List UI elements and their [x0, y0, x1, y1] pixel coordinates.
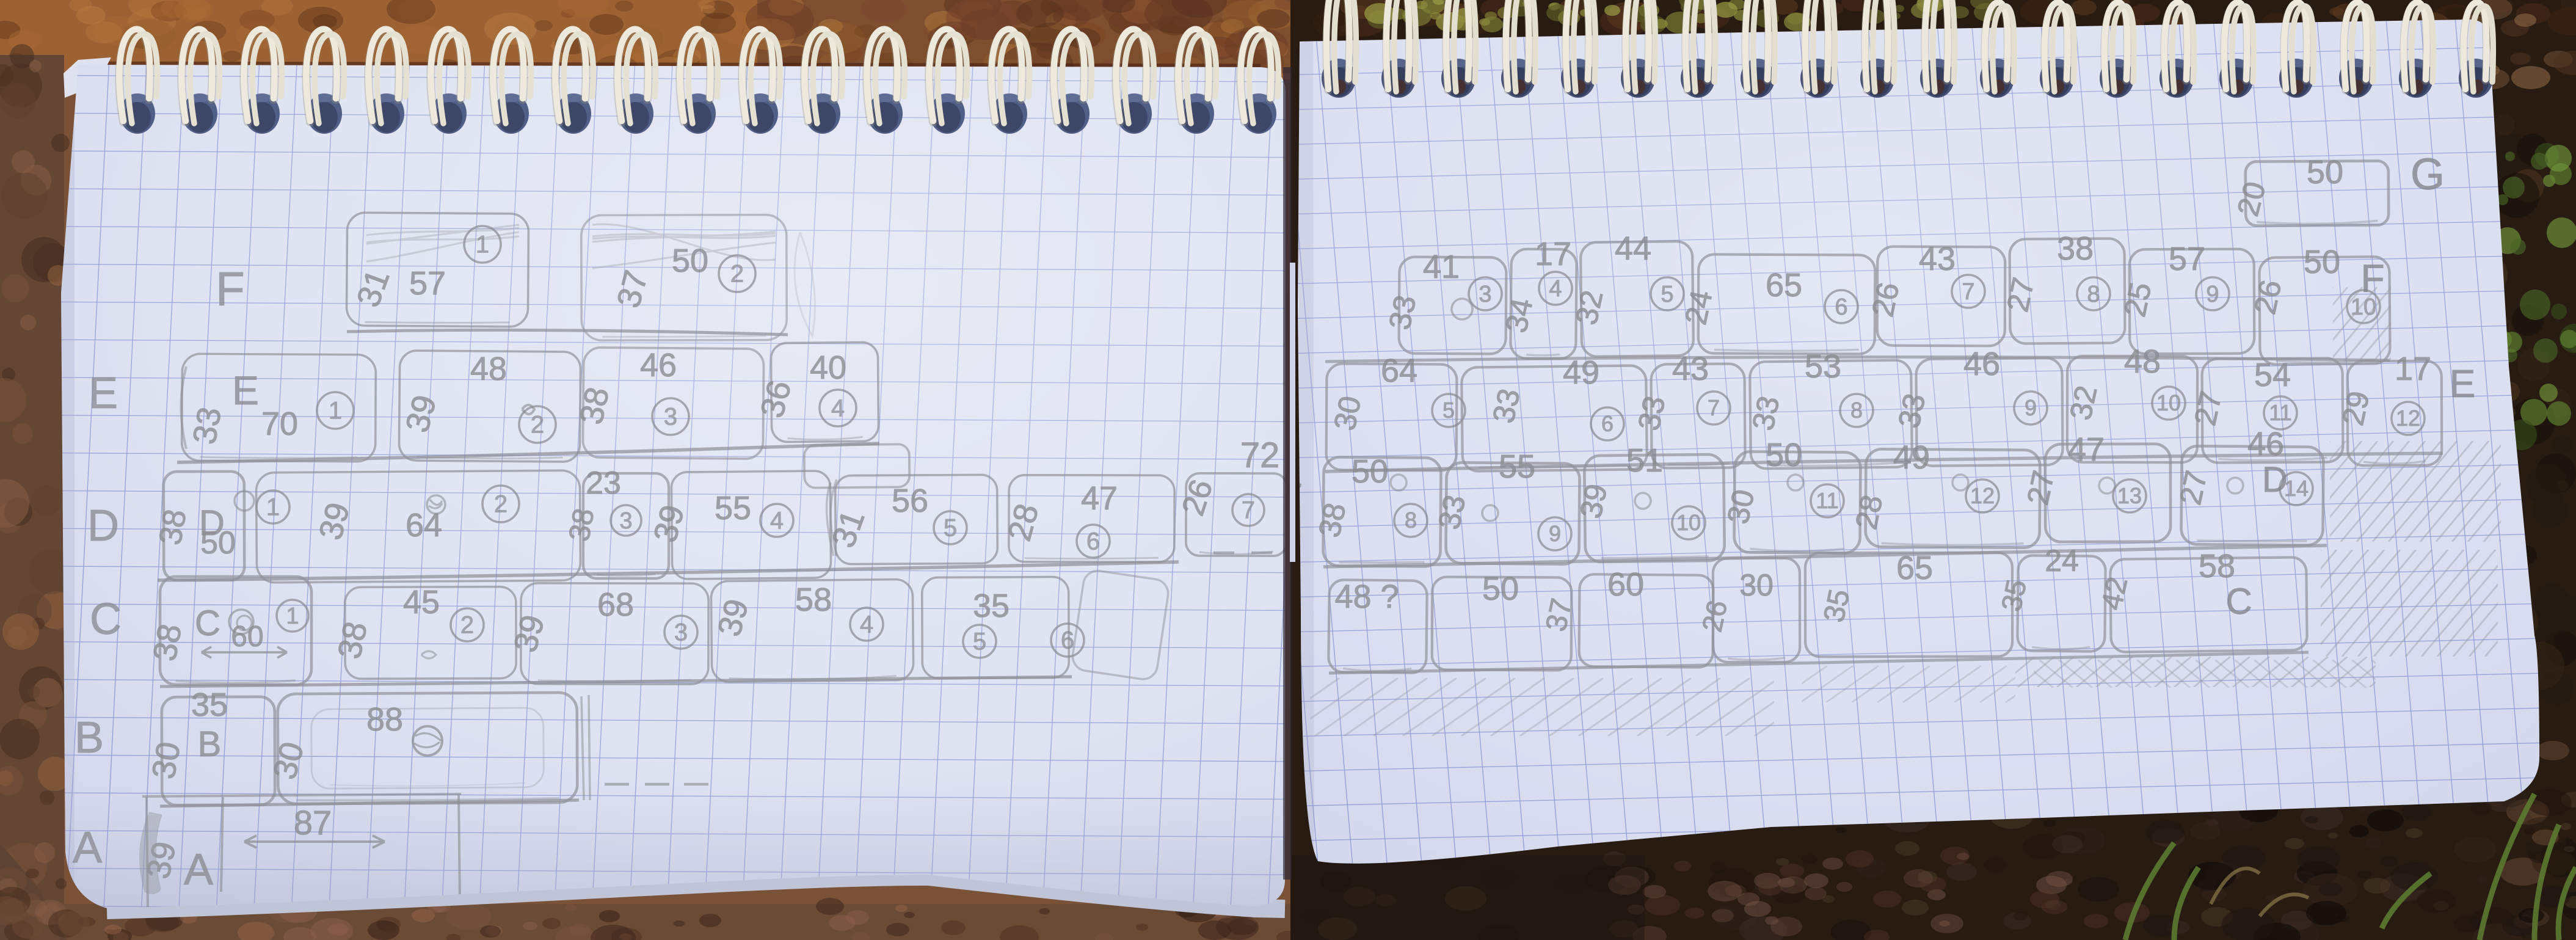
svg-text:12: 12	[1970, 483, 1995, 508]
svg-text:7: 7	[1242, 497, 1255, 524]
svg-text:33: 33	[1432, 492, 1472, 532]
svg-text:28: 28	[1849, 492, 1889, 532]
svg-text:50: 50	[2307, 154, 2343, 191]
svg-text:50: 50	[1352, 453, 1388, 490]
svg-text:27: 27	[2020, 467, 2061, 508]
svg-text:30: 30	[1327, 393, 1367, 433]
svg-text:3: 3	[1479, 282, 1491, 307]
svg-text:35: 35	[1995, 577, 2033, 614]
svg-text:38: 38	[2057, 230, 2094, 267]
svg-text:6: 6	[1601, 411, 1614, 436]
svg-text:6: 6	[1835, 294, 1847, 320]
svg-text:60: 60	[1607, 566, 1644, 603]
svg-text:49: 49	[1893, 439, 1930, 476]
svg-text:30: 30	[1720, 486, 1761, 526]
svg-text:G: G	[2410, 150, 2445, 199]
svg-text:51: 51	[1626, 442, 1663, 479]
svg-text:2: 2	[730, 261, 744, 288]
svg-text:33: 33	[1631, 393, 1672, 433]
svg-text:68: 68	[597, 586, 634, 623]
svg-text:65: 65	[1896, 550, 1933, 586]
svg-text:53: 53	[1805, 348, 1841, 385]
svg-text:6: 6	[1086, 528, 1100, 555]
svg-text:50: 50	[2304, 244, 2340, 280]
svg-text:10: 10	[2156, 390, 2181, 415]
svg-text:64: 64	[1381, 352, 1417, 389]
svg-text:25: 25	[2117, 279, 2158, 319]
svg-text:33: 33	[1382, 292, 1422, 332]
svg-text:B: B	[75, 713, 104, 762]
svg-text:30: 30	[145, 739, 188, 782]
svg-text:54: 54	[2254, 357, 2291, 393]
svg-text:33: 33	[186, 404, 229, 447]
svg-text:A: A	[184, 845, 213, 894]
svg-text:35: 35	[1817, 586, 1856, 625]
svg-text:60: 60	[231, 621, 263, 653]
svg-text:9: 9	[2206, 282, 2219, 307]
svg-text:1: 1	[329, 398, 342, 424]
svg-text:32: 32	[2063, 382, 2103, 423]
svg-text:46: 46	[640, 347, 677, 384]
svg-text:3: 3	[674, 619, 688, 646]
svg-text:38: 38	[147, 621, 189, 664]
svg-text:9: 9	[2025, 395, 2037, 420]
svg-text:4: 4	[860, 611, 873, 638]
svg-text:27: 27	[2188, 388, 2228, 428]
svg-text:87: 87	[294, 803, 332, 842]
svg-text:12: 12	[2396, 406, 2420, 431]
svg-text:38: 38	[573, 384, 616, 428]
svg-text:65: 65	[1766, 267, 1802, 304]
svg-text:38: 38	[1312, 500, 1352, 540]
svg-text:17: 17	[2395, 351, 2431, 387]
svg-text:40: 40	[810, 349, 846, 386]
svg-text:13: 13	[2117, 483, 2142, 508]
svg-text:C: C	[90, 595, 122, 644]
svg-text:2: 2	[460, 612, 474, 639]
svg-text:64: 64	[406, 507, 442, 544]
svg-text:34: 34	[1499, 295, 1539, 335]
svg-text:48: 48	[470, 351, 507, 387]
svg-text:35: 35	[191, 687, 228, 723]
svg-text:38: 38	[563, 506, 600, 544]
svg-text:8: 8	[2087, 282, 2100, 307]
svg-text:50: 50	[672, 242, 708, 279]
svg-text:F: F	[216, 262, 245, 316]
svg-text:9: 9	[1549, 521, 1561, 546]
svg-text:11: 11	[2269, 400, 2291, 425]
svg-text:5: 5	[944, 515, 957, 542]
svg-text:88: 88	[366, 701, 403, 738]
svg-text:33: 33	[1891, 390, 1932, 431]
svg-text:17: 17	[1535, 236, 1571, 272]
svg-text:5: 5	[1661, 282, 1673, 307]
svg-text:43: 43	[1672, 351, 1709, 387]
svg-text:24: 24	[2045, 544, 2079, 578]
svg-text:3: 3	[619, 508, 632, 534]
svg-text:44: 44	[1615, 230, 1651, 267]
svg-text:E: E	[89, 369, 118, 418]
svg-text:5: 5	[1443, 398, 1455, 423]
svg-text:D: D	[2262, 460, 2288, 500]
svg-text:10: 10	[1676, 510, 1701, 535]
svg-text:C: C	[195, 603, 220, 643]
svg-text:49: 49	[1563, 354, 1599, 391]
svg-text:43: 43	[1919, 241, 1956, 277]
svg-text:70: 70	[261, 406, 298, 442]
svg-text:50: 50	[200, 525, 236, 561]
svg-text:1: 1	[476, 231, 489, 258]
svg-text:55: 55	[715, 490, 751, 526]
svg-text:47: 47	[1081, 480, 1118, 517]
svg-text:58: 58	[2199, 548, 2235, 585]
svg-text:33: 33	[1486, 385, 1526, 426]
svg-text:38: 38	[331, 619, 374, 662]
svg-text:4: 4	[831, 395, 845, 422]
svg-text:27: 27	[2000, 274, 2040, 315]
svg-text:47: 47	[2068, 431, 2105, 468]
svg-text:45: 45	[403, 584, 440, 621]
svg-text:35: 35	[973, 588, 1010, 624]
svg-text:26: 26	[1865, 279, 1905, 319]
svg-text:8: 8	[1405, 508, 1417, 533]
svg-text:58: 58	[795, 581, 832, 618]
svg-text:7: 7	[1708, 395, 1720, 420]
svg-text:3: 3	[664, 404, 677, 431]
svg-text:B: B	[198, 724, 222, 764]
svg-text:A: A	[73, 823, 102, 872]
svg-text:33: 33	[1745, 393, 1786, 433]
svg-text:27: 27	[2173, 467, 2213, 508]
svg-text:1: 1	[266, 494, 280, 521]
svg-text:55: 55	[1499, 448, 1535, 485]
svg-text:11: 11	[1816, 488, 1838, 513]
svg-text:E: E	[2450, 362, 2476, 406]
svg-text:7: 7	[1962, 279, 1974, 305]
svg-text:46: 46	[1963, 346, 2000, 382]
svg-text:8: 8	[1850, 398, 1863, 423]
svg-text:57: 57	[409, 265, 446, 302]
svg-text:50: 50	[1766, 437, 1802, 473]
svg-text:39: 39	[1573, 481, 1614, 521]
svg-text:F: F	[2360, 257, 2384, 301]
svg-text:42: 42	[2095, 574, 2134, 613]
svg-text:1: 1	[286, 603, 299, 629]
svg-text:2: 2	[531, 412, 544, 439]
svg-text:29: 29	[2335, 388, 2376, 428]
svg-text:14: 14	[2284, 476, 2309, 501]
svg-text:26: 26	[1696, 597, 1734, 635]
svg-text:2: 2	[494, 491, 508, 518]
svg-text:5: 5	[973, 628, 986, 655]
svg-text:50: 50	[1482, 570, 1519, 607]
svg-text:46: 46	[2247, 426, 2284, 462]
svg-text:6: 6	[1061, 627, 1074, 654]
svg-text:48 ?: 48 ?	[1334, 578, 1399, 615]
svg-text:4: 4	[770, 508, 784, 534]
svg-text:57: 57	[2169, 241, 2205, 277]
svg-text:C: C	[2225, 581, 2252, 622]
svg-text:24: 24	[1678, 287, 1719, 327]
svg-text:E: E	[232, 368, 259, 413]
svg-text:32: 32	[1569, 287, 1609, 327]
svg-text:23: 23	[586, 465, 621, 501]
svg-text:30: 30	[1739, 568, 1774, 602]
svg-text:38: 38	[153, 507, 194, 548]
svg-text:41: 41	[1423, 249, 1460, 285]
svg-text:4: 4	[1549, 276, 1562, 302]
svg-text:26: 26	[2247, 277, 2288, 317]
svg-text:D: D	[87, 501, 119, 550]
svg-text:72: 72	[1240, 435, 1280, 475]
svg-text:48: 48	[2124, 343, 2161, 380]
svg-text:37: 37	[1540, 596, 1578, 634]
